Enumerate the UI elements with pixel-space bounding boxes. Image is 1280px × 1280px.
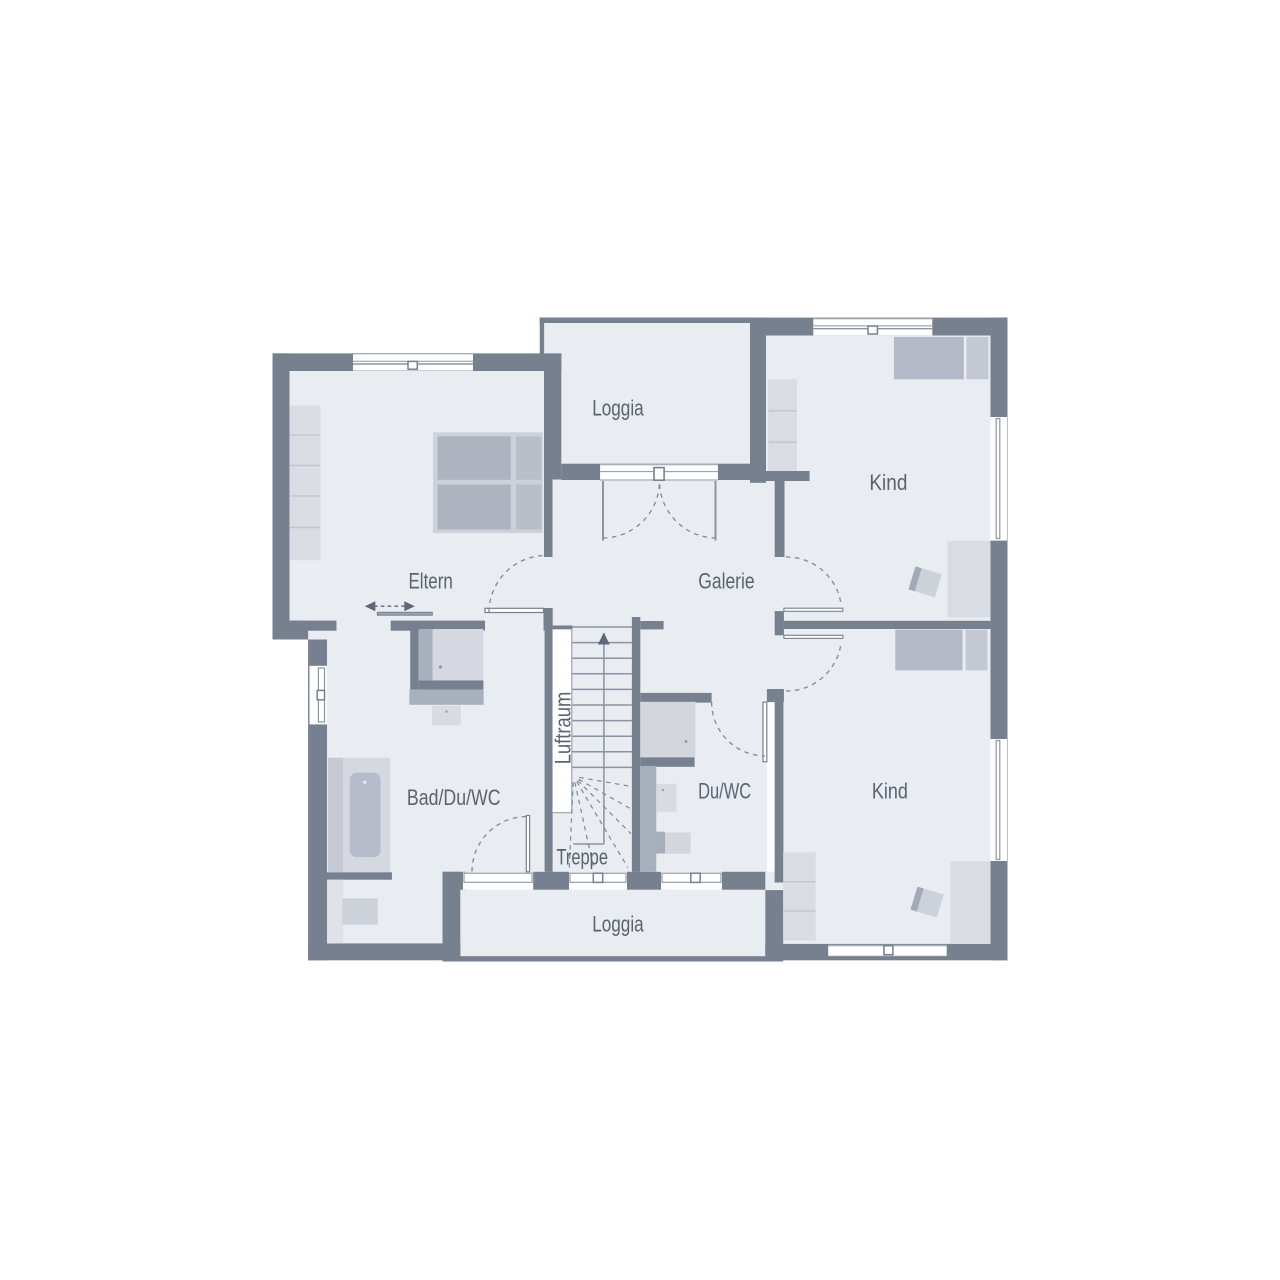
- svg-text:Loggia: Loggia: [592, 912, 644, 937]
- svg-text:Loggia: Loggia: [592, 396, 644, 421]
- svg-text:Treppe: Treppe: [556, 845, 608, 870]
- svg-text:Galerie: Galerie: [698, 568, 754, 593]
- svg-text:Kind: Kind: [872, 779, 908, 804]
- svg-text:Eltern: Eltern: [409, 568, 453, 593]
- svg-text:Du/WC: Du/WC: [698, 779, 751, 804]
- svg-text:Luftraum: Luftraum: [551, 692, 576, 765]
- svg-text:Kind: Kind: [869, 470, 907, 495]
- svg-text:Bad/Du/WC: Bad/Du/WC: [407, 785, 501, 810]
